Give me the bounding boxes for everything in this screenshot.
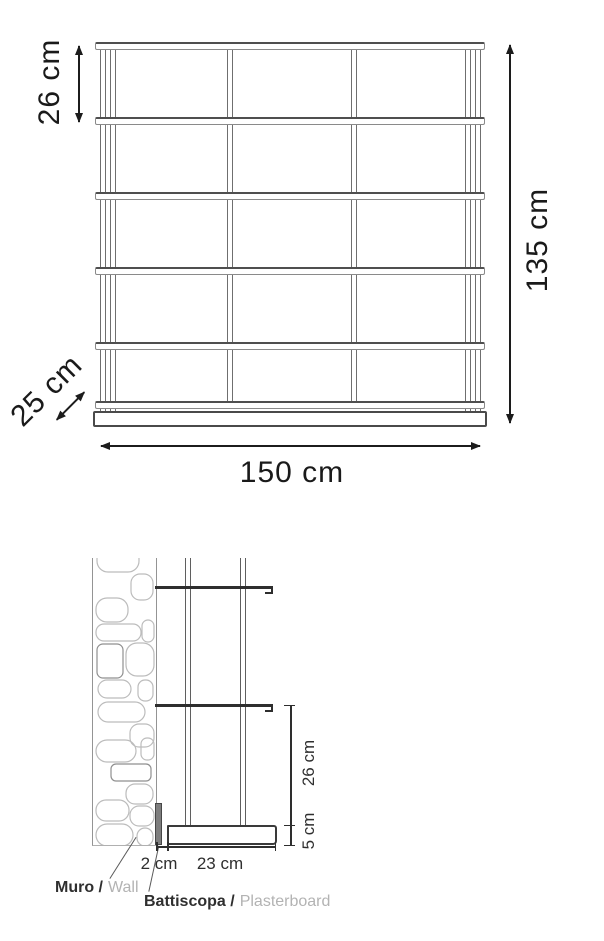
plinth-height-label: 5 cm [299, 796, 319, 866]
vertical-post-right-back [465, 46, 471, 412]
vertical-post-right-front [475, 46, 481, 412]
skirting-caption-italian: Battiscopa / [144, 893, 235, 910]
base-plinth [93, 411, 487, 427]
vertical-divider-1 [227, 46, 233, 406]
shelf-band-2 [95, 117, 485, 125]
dim-tick-wall-face [156, 842, 158, 851]
upright-post-back [240, 558, 246, 825]
skirting-caption-english: Plasterboard [240, 893, 331, 910]
shelf-hook-1-bottom [265, 592, 273, 595]
shelf-spacing-arrow [78, 46, 80, 122]
shelf-section-line-2 [155, 704, 273, 707]
vertical-post-left-front [100, 46, 106, 412]
side-horizontal-dim-line [156, 846, 276, 848]
height-label: 135 cm [521, 185, 555, 295]
dim-tick-shelf [284, 705, 295, 707]
wall-caption: Muro /Wall [55, 879, 139, 897]
shelf-band-3 [95, 192, 485, 200]
width-arrow [101, 445, 480, 447]
skirting-board [155, 803, 162, 845]
diagram-canvas: 26 cm 135 cm 150 cm 25 cm [0, 0, 604, 941]
wall-section-view: 26 cm 5 cm 2 cm 23 cm Muro /Wall Battisc… [0, 500, 604, 941]
bookshelf-front-view: 26 cm 135 cm 150 cm 25 cm [0, 0, 604, 500]
side-shelf-spacing-label: 26 cm [299, 728, 319, 798]
shelf-hook-2-bottom [265, 710, 273, 713]
height-arrow [509, 45, 511, 423]
skirting-thickness-label: 2 cm [124, 854, 194, 874]
wall-caption-english: Wall [108, 879, 139, 896]
wall-stone-pattern [93, 558, 156, 845]
shelf-spacing-label: 26 cm [33, 27, 67, 137]
shelf-band-bottom [95, 401, 485, 409]
dim-tick-plinth-right [275, 842, 277, 851]
vertical-divider-2 [351, 46, 357, 406]
wall-caption-italian: Muro / [55, 879, 103, 896]
wall [92, 558, 157, 846]
dim-tick-plinth-top [284, 825, 295, 827]
shelf-section-line-1 [155, 586, 273, 589]
base-depth-label: 23 cm [185, 854, 255, 874]
skirting-caption: Battiscopa /Plasterboard [144, 893, 330, 911]
width-label: 150 cm [237, 456, 347, 490]
vertical-post-left-back [110, 46, 116, 412]
shelf-band-5 [95, 342, 485, 350]
upright-post-front [185, 558, 191, 825]
dim-tick-plinth-bottom [284, 845, 295, 847]
shelf-band-top [95, 42, 485, 50]
shelf-band-4 [95, 267, 485, 275]
dim-tick-plinth-left [167, 842, 169, 851]
base-plinth-side [167, 825, 277, 845]
